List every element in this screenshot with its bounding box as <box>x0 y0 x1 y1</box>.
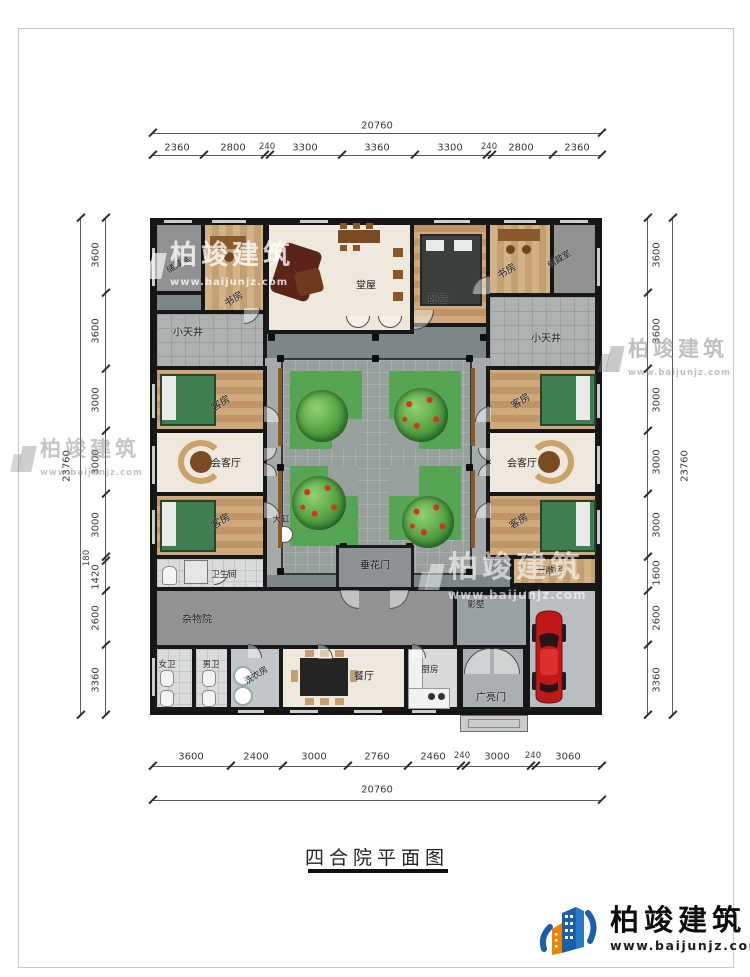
dim-label: 3600 <box>91 242 102 267</box>
room-label-gate: 广亮门 <box>476 689 506 704</box>
dim-label: 2400 <box>243 752 268 763</box>
door-arc <box>414 310 434 330</box>
window <box>152 658 155 696</box>
chair <box>393 270 403 279</box>
chair <box>305 650 314 657</box>
desk <box>210 236 246 249</box>
dim-label: 3600 <box>652 242 663 267</box>
chair <box>340 245 347 251</box>
chair <box>291 670 298 682</box>
dim-label: 3600 <box>178 752 203 763</box>
room-label-bedroom: 卧室 <box>428 291 448 306</box>
room-label-light-well-east: 小天井 <box>531 330 561 345</box>
dim-label: 3000 <box>652 512 663 537</box>
room-label-light-well-west: 小天井 <box>173 324 203 339</box>
title-underline <box>308 869 448 873</box>
pillow <box>454 240 472 251</box>
pillow <box>576 502 590 546</box>
window <box>212 220 246 223</box>
bench <box>471 368 475 446</box>
window <box>290 710 318 713</box>
column <box>277 355 284 362</box>
dim-line-top-total <box>152 133 601 134</box>
window <box>164 220 192 223</box>
room-label-wc-men: 男卫 <box>202 658 219 670</box>
dim-label: 3000 <box>91 512 102 537</box>
dim-label: 240 <box>454 751 470 761</box>
flowering-tree-icon <box>402 496 454 548</box>
window <box>597 510 600 544</box>
window <box>597 446 600 484</box>
dim-label: 240 <box>525 751 541 761</box>
dim-label: 3300 <box>437 143 462 154</box>
window <box>597 384 600 418</box>
dim-label: 3000 <box>301 752 326 763</box>
drawing-title: 四合院平面图 <box>305 843 449 870</box>
room-label-screen-wall: 影壁 <box>467 598 484 610</box>
gate-steps-inner <box>468 719 520 728</box>
dim-label: 3600 <box>91 318 102 343</box>
window <box>504 220 536 223</box>
toilet <box>162 566 177 585</box>
pillow <box>576 376 590 420</box>
dim-label: 3360 <box>652 667 663 692</box>
chair <box>393 248 403 257</box>
window <box>152 248 155 286</box>
brand-url: www.baijunjz.com <box>610 938 750 953</box>
chair <box>353 223 360 229</box>
plot-notch <box>389 466 419 496</box>
column <box>480 334 487 341</box>
desk <box>498 229 540 241</box>
room-label-vat: 大缸 <box>272 513 289 525</box>
window <box>300 220 328 223</box>
pillow <box>162 502 176 546</box>
pillow <box>162 376 176 420</box>
flowering-tree-icon <box>292 476 346 530</box>
dim-line-left-total <box>80 218 81 715</box>
dim-label: 3300 <box>292 143 317 154</box>
bench <box>471 470 475 548</box>
pillow <box>426 240 444 251</box>
tree-icon <box>296 390 348 442</box>
column <box>372 355 379 362</box>
column <box>466 355 473 362</box>
dim-label: 3000 <box>652 449 663 474</box>
dim-line-top-segments <box>152 155 601 156</box>
chair <box>335 698 344 705</box>
toilet <box>202 670 216 687</box>
dim-label: 2800 <box>508 143 533 154</box>
room-label-utility-yard: 杂物院 <box>182 611 212 626</box>
dim-label: 3000 <box>484 752 509 763</box>
toilet <box>160 690 174 707</box>
dim-label: 2460 <box>420 752 445 763</box>
dim-label: 3000 <box>91 387 102 412</box>
dining-table <box>300 658 348 696</box>
chair <box>340 223 347 229</box>
dim-label: 3000 <box>652 387 663 412</box>
shower <box>184 560 208 584</box>
burner <box>428 693 435 700</box>
window <box>434 220 470 223</box>
dim-label: 1420 <box>91 564 102 589</box>
dim-label: 2600 <box>652 605 663 630</box>
dim-label: 3060 <box>555 752 580 763</box>
room-label-open-room: 开敞房 <box>537 564 563 576</box>
brand-name: 柏竣建筑 <box>610 906 750 935</box>
chair <box>224 252 234 262</box>
window <box>152 510 155 544</box>
dim-label: 1600 <box>652 560 663 585</box>
window <box>560 220 588 223</box>
window <box>597 248 600 286</box>
chair <box>305 698 314 705</box>
washing-machine <box>233 686 253 706</box>
room-label-hall: 堂屋 <box>356 277 376 292</box>
red-car <box>531 610 567 704</box>
gate-vestibule <box>453 587 530 649</box>
window <box>354 710 382 713</box>
flowering-tree-icon <box>394 388 448 442</box>
dim-line-bottom-total <box>152 800 601 801</box>
room-label-wc-women: 女卫 <box>158 658 175 670</box>
room-label-bathroom: 卫生间 <box>211 568 237 580</box>
brand-logo: 柏竣建筑 www.baijunjz.com <box>538 899 750 959</box>
dim-label: 2760 <box>364 752 389 763</box>
dim-label: 2600 <box>91 605 102 630</box>
room-label-festoon-gate: 垂花门 <box>360 557 390 572</box>
column <box>277 568 284 575</box>
chair <box>506 245 515 254</box>
chair <box>366 223 373 229</box>
chair <box>393 292 403 301</box>
room-label-kitchen: 厨房 <box>421 663 438 675</box>
chair <box>320 698 329 705</box>
dim-label: 20760 <box>361 785 393 796</box>
chair <box>335 650 344 657</box>
column <box>277 464 284 471</box>
dim-label: 2360 <box>564 143 589 154</box>
dim-label: 3000 <box>91 449 102 474</box>
window <box>238 710 264 713</box>
column <box>466 464 473 471</box>
dim-line-right-total <box>672 218 673 715</box>
room-label-reception-west: 会客厅 <box>211 455 241 470</box>
brand-logo-icon <box>538 899 600 959</box>
screen-wall <box>458 589 525 595</box>
window <box>152 384 155 418</box>
room-label-dining: 餐厅 <box>354 668 374 683</box>
dim-label: 3360 <box>364 143 389 154</box>
dim-label: 23760 <box>680 450 691 482</box>
dim-label: 2360 <box>164 143 189 154</box>
bench <box>278 368 282 446</box>
column <box>372 334 379 341</box>
dim-label: 20760 <box>361 121 393 132</box>
dim-label: 3360 <box>91 667 102 692</box>
toilet <box>160 670 174 687</box>
window <box>152 446 155 484</box>
floor-plan-sheet: 20760 2360 2800 240 3300 3360 3300 240 2… <box>0 0 750 977</box>
chair <box>522 245 531 254</box>
chair <box>353 245 360 251</box>
room-label-reception-east: 会客厅 <box>507 455 537 470</box>
dim-label: 2800 <box>220 143 245 154</box>
toilet <box>202 690 216 707</box>
dim-label: 3600 <box>652 318 663 343</box>
dining-table <box>338 230 380 243</box>
column <box>466 568 473 575</box>
burner <box>438 693 445 700</box>
dim-label: 23760 <box>62 450 73 482</box>
window <box>412 710 436 713</box>
floor-plan: 储藏室 书房 堂屋 卧室 书房 储藏室 小天井 小天井 客房 会客厅 客房 客房… <box>150 218 602 715</box>
bench <box>278 470 282 548</box>
column <box>268 334 275 341</box>
